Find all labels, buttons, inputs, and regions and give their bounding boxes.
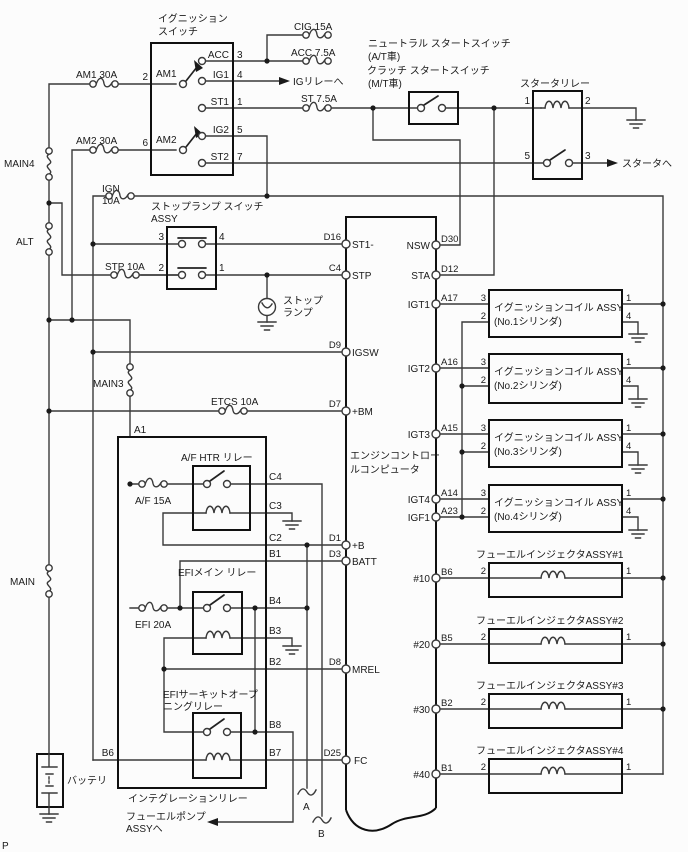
ecu-pin-code: A23 xyxy=(441,506,458,517)
injector-pin: 1 xyxy=(626,762,631,773)
ignition-switch-acc: ACC xyxy=(208,50,229,61)
ignition-switch-pin7: 7 xyxy=(237,152,243,163)
starter-relay-pin2: 2 xyxy=(585,96,591,107)
injector-pin: 2 xyxy=(481,566,486,577)
ecu-pin-name: STA xyxy=(411,271,430,282)
ecu-pin-code: B6 xyxy=(441,567,453,578)
pin-a1: A1 xyxy=(134,425,147,436)
ecu-pin-code: A16 xyxy=(441,357,458,368)
label-fuse-af: A/F 15A xyxy=(135,496,171,507)
ecu-pin-name: MREL xyxy=(352,665,380,676)
coil-pin: 3 xyxy=(481,293,486,304)
injector-pin: 1 xyxy=(626,632,631,643)
circuit-opening-relay-box xyxy=(193,713,241,778)
coil-pin: 4 xyxy=(626,375,631,386)
note-to-fuel-pump-1: フューエルポンプ xyxy=(126,811,206,823)
ignition-switch-title-1: イグニッション xyxy=(158,12,228,25)
ecu-pin-name: #20 xyxy=(413,640,430,651)
ecu-pin-code: B1 xyxy=(441,763,453,774)
ecu-pin-code: A17 xyxy=(441,293,458,304)
battery-symbol xyxy=(37,754,63,814)
stop-lamp-label-2: ランプ xyxy=(283,307,313,319)
fusible-links xyxy=(46,148,133,597)
ecu-pin-name: +B xyxy=(352,541,365,552)
injector3-title: フューエルインジェクタASSY#3 xyxy=(476,680,624,692)
engine-control-wiring-diagram: IGN 10A xyxy=(0,0,688,852)
stop-lamp-switch-pin4: 4 xyxy=(219,232,225,243)
label-fuse-am1: AM1 30A xyxy=(76,70,117,81)
injector2-title: フューエルインジェクタASSY#2 xyxy=(476,615,624,627)
co-relay-title-2: ニングリレー xyxy=(163,700,223,713)
pin-b1: B1 xyxy=(269,549,282,560)
ignition-switch-st2: ST2 xyxy=(211,152,230,163)
to-fuel-pump-arrow-icon xyxy=(207,818,218,826)
ignition-switch-st1: ST1 xyxy=(211,97,230,108)
label-fuse-am2: AM2 30A xyxy=(76,136,117,147)
ecu-pin-code: A15 xyxy=(441,423,458,434)
pin-b8: B8 xyxy=(269,720,282,731)
label-fuse-cig: CIG 15A xyxy=(294,22,333,33)
ignition-switch-pin5: 5 xyxy=(237,125,243,136)
injector-pin: 1 xyxy=(626,566,631,577)
af-htr-relay-box xyxy=(193,466,250,530)
ecu-pin-name: IGF1 xyxy=(408,513,431,524)
coil4-title-1: イグニッションコイル ASSY xyxy=(494,496,624,509)
label-fuse-stp: STP 10A xyxy=(105,262,145,273)
ecu-pin-code: D9 xyxy=(329,340,341,351)
junction-dots xyxy=(46,58,665,734)
ecu-pin-circles xyxy=(342,240,440,778)
stop-lamp-switch-title-2: ASSY xyxy=(151,214,178,225)
efi-relay-title: EFIメイン リレー xyxy=(178,568,256,579)
pin-c4: C4 xyxy=(269,472,282,483)
label-fuse-acc: ACC 7.5A xyxy=(291,48,336,59)
injector-4-box xyxy=(489,759,622,793)
label-main4: MAIN4 xyxy=(4,159,35,170)
neutral-switch-line4: (M/T車) xyxy=(368,77,402,90)
starter-relay-title: スタータリレー xyxy=(520,78,590,90)
ecu-pin-name: STP xyxy=(352,271,372,282)
coil3-title-2: (No.3シリンダ) xyxy=(494,445,562,458)
ignition-switch-ig2: IG2 xyxy=(213,125,230,136)
note-to-fuel-pump-2: ASSYへ xyxy=(126,824,163,835)
ecu-pin-name: #30 xyxy=(413,705,430,716)
neutral-switch-line3: クラッチ スタートスイッチ xyxy=(367,65,490,77)
ignition-switch-am2: AM2 xyxy=(156,135,177,146)
ecu-pin-code: C4 xyxy=(329,263,341,274)
ecu-pin-name: IGT3 xyxy=(408,430,431,441)
stop-lamp-switch-title-1: ストップランプ スイッチ xyxy=(151,201,263,213)
ecu-pin-code: D8 xyxy=(329,657,341,668)
ecu-pin-code: D16 xyxy=(324,232,341,243)
injector-pin: 2 xyxy=(481,762,486,773)
wiring-diagram-page: IGN 10A xyxy=(0,0,688,852)
pin-b4: B4 xyxy=(269,596,282,607)
wire-sta xyxy=(440,108,494,275)
stop-lamp-switch-pin1: 1 xyxy=(219,263,225,274)
starter-relay-pin3: 3 xyxy=(585,151,591,162)
ignition-coil-2-box xyxy=(489,354,622,403)
wire-af-relay xyxy=(130,484,342,816)
efi-main-relay-box xyxy=(193,592,242,654)
ecu-pin-name: +BM xyxy=(352,407,373,418)
stop-lamp-label-1: ストップ xyxy=(283,295,323,307)
ecu-pin-name: ST1- xyxy=(352,240,374,251)
injector1-title: フューエルインジェクタASSY#1 xyxy=(476,549,624,561)
af-relay-title: A/F HTR リレー xyxy=(181,453,253,464)
ecu-pin-code: A14 xyxy=(441,488,458,499)
connector-a-label: A xyxy=(303,802,310,813)
ignition-switch-am1: AM1 xyxy=(156,69,177,80)
ecu-pin-code: B2 xyxy=(441,698,453,709)
coil1-title-2: (No.1シリンダ) xyxy=(494,315,562,328)
coil-pin: 2 xyxy=(481,311,486,322)
label-fuse-etcs: ETCS 10A xyxy=(211,397,259,408)
wire-igt-stubs xyxy=(440,304,489,517)
coil3-title-1: イグニッションコイル ASSY xyxy=(494,431,624,444)
coil2-title-1: イグニッションコイル ASSY xyxy=(494,365,624,378)
ecu-pin-name: BATT xyxy=(352,557,377,568)
ecu-pin-code: D7 xyxy=(329,399,341,410)
ecu-pin-code: D1 xyxy=(329,533,341,544)
label-fuse-st: ST 7.5A xyxy=(301,94,337,105)
injector4-title: フューエルインジェクタASSY#4 xyxy=(476,745,624,757)
ecu-pin-name: NSW xyxy=(407,241,431,252)
pin-b6: B6 xyxy=(102,748,115,759)
stop-lamp-switch-pin2: 2 xyxy=(158,263,164,274)
neutral-switch-line1: ニュートラル スタートスイッチ xyxy=(368,38,511,50)
pin-c2: C2 xyxy=(269,533,282,544)
to-ig-relay-arrow-icon xyxy=(279,77,290,85)
injector-3-box xyxy=(489,694,622,728)
label-battery: バッテリ xyxy=(67,775,107,787)
ground-symbols xyxy=(40,120,647,822)
coil-pin: 1 xyxy=(626,293,631,304)
stop-lamp-bulb-icon xyxy=(259,299,276,316)
pin-b2: B2 xyxy=(269,657,282,668)
injector-1-box xyxy=(489,563,622,597)
wire-injector-lines xyxy=(440,578,663,774)
ecu-pin-code: D25 xyxy=(324,748,341,759)
pin-b7: B7 xyxy=(269,748,282,759)
connector-b-label: B xyxy=(318,829,325,840)
injector-pin: 2 xyxy=(481,697,486,708)
ecu-pin-code: D30 xyxy=(441,234,458,245)
coil-pin: 1 xyxy=(626,488,631,499)
coil-pin: 4 xyxy=(626,311,631,322)
ecu-pin-name: IGT1 xyxy=(408,300,431,311)
label-main: MAIN xyxy=(10,577,35,588)
ecu-pin-name: FC xyxy=(354,756,367,767)
note-to-starter: スタータへ xyxy=(622,158,672,170)
coil-pin: 1 xyxy=(626,357,631,368)
starter-relay-pin5: 5 xyxy=(524,151,530,162)
label-main3: MAIN3 xyxy=(93,379,124,390)
to-starter-arrow-icon xyxy=(607,159,618,167)
page-corner-mark: P xyxy=(2,841,9,852)
ignition-switch-pin4: 4 xyxy=(237,70,243,81)
ecu-pin-name: IGT2 xyxy=(408,364,431,375)
labels: P MAIN4 ALT MAIN MAIN3 バッテリ AM1 30A AM2 … xyxy=(2,12,672,852)
coil-pin: 4 xyxy=(626,506,631,517)
ecu-pin-name: #40 xyxy=(413,770,430,781)
ignition-switch-title-2: スイッチ xyxy=(158,26,198,38)
note-to-ig-relay: IGリレーへ xyxy=(293,77,344,88)
coil4-title-2: (No.4シリンダ) xyxy=(494,510,562,523)
ecu-pin-name: #10 xyxy=(413,574,430,585)
stop-lamp-switch-pin3: 3 xyxy=(158,232,164,243)
ecu-pin-name: IGSW xyxy=(352,348,379,359)
ecu-name-1: エンジンコントロー xyxy=(350,451,440,462)
injector-pin: 2 xyxy=(481,632,486,643)
ecu-name-2: ルコンピュータ xyxy=(350,464,420,476)
coil-pin: 2 xyxy=(481,506,486,517)
coil-pin: 4 xyxy=(626,441,631,452)
ecu-pin-code: D3 xyxy=(329,549,341,560)
coil-pin: 2 xyxy=(481,375,486,386)
ecu-pin-code: D12 xyxy=(441,264,458,275)
integration-relay-title: インテグレーションリレー xyxy=(128,792,248,805)
ecu-pin-code: B5 xyxy=(441,633,453,644)
label-alt: ALT xyxy=(16,237,34,248)
starter-relay-box xyxy=(533,91,582,179)
label-fuse-efi: EFI 20A xyxy=(135,620,171,631)
neutral-switch-line2: (A/T車) xyxy=(368,50,400,63)
ignition-switch-pin3: 3 xyxy=(237,50,243,61)
coil-pin: 3 xyxy=(481,357,486,368)
ignition-switch-pin6: 6 xyxy=(142,138,148,149)
co-relay-title-1: EFIサーキットオープ xyxy=(163,689,258,701)
starter-relay-pin1: 1 xyxy=(524,96,530,107)
coil1-title-1: イグニッションコイル ASSY xyxy=(494,301,624,314)
pin-c3: C3 xyxy=(269,501,282,512)
coil2-title-2: (No.2シリンダ) xyxy=(494,379,562,392)
coil-pin: 2 xyxy=(481,441,486,452)
wire-nsw xyxy=(373,108,460,245)
ecu-pin-name: IGT4 xyxy=(408,495,431,506)
stop-lamp-switch-box xyxy=(167,227,216,289)
coil-pin: 3 xyxy=(481,488,486,499)
coil-pin: 1 xyxy=(626,423,631,434)
ignition-switch-ig1: IG1 xyxy=(213,70,230,81)
pin-b3: B3 xyxy=(269,626,282,637)
coil-pin: 3 xyxy=(481,423,486,434)
injector-2-box xyxy=(489,629,622,663)
injector-pin: 1 xyxy=(626,697,631,708)
ignition-switch-pin2: 2 xyxy=(142,72,148,83)
ignition-switch-pin1: 1 xyxy=(237,97,243,108)
